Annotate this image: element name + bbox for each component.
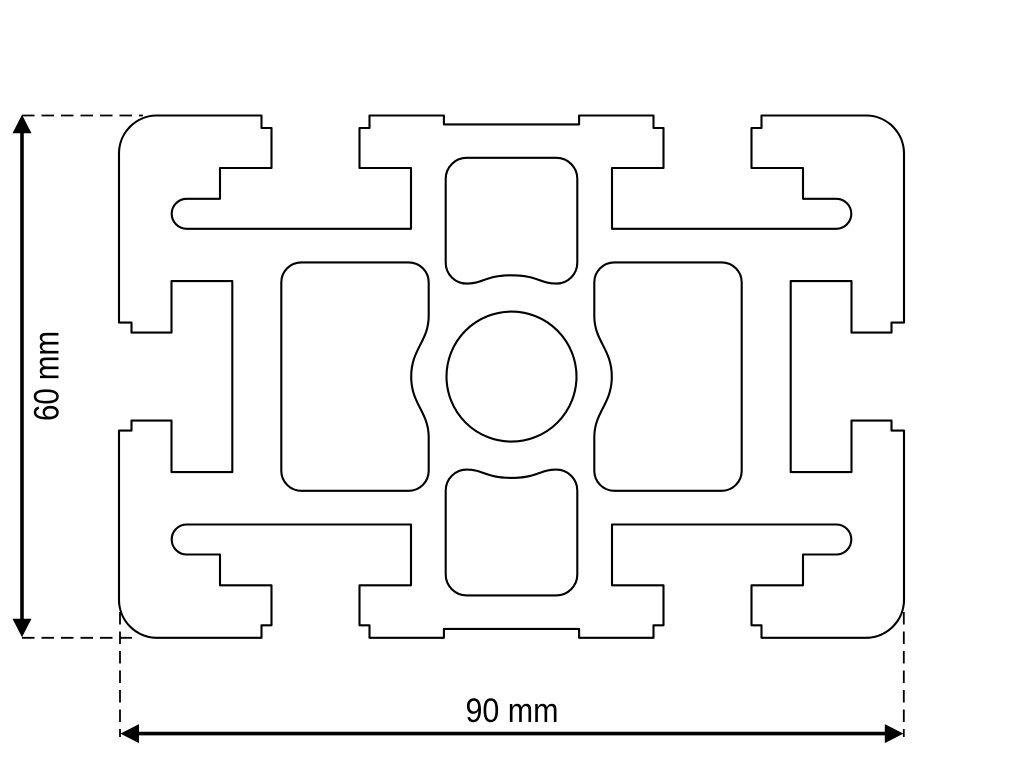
svg-text:90 mm: 90 mm (466, 692, 559, 730)
svg-text:60 mm: 60 mm (28, 331, 67, 421)
